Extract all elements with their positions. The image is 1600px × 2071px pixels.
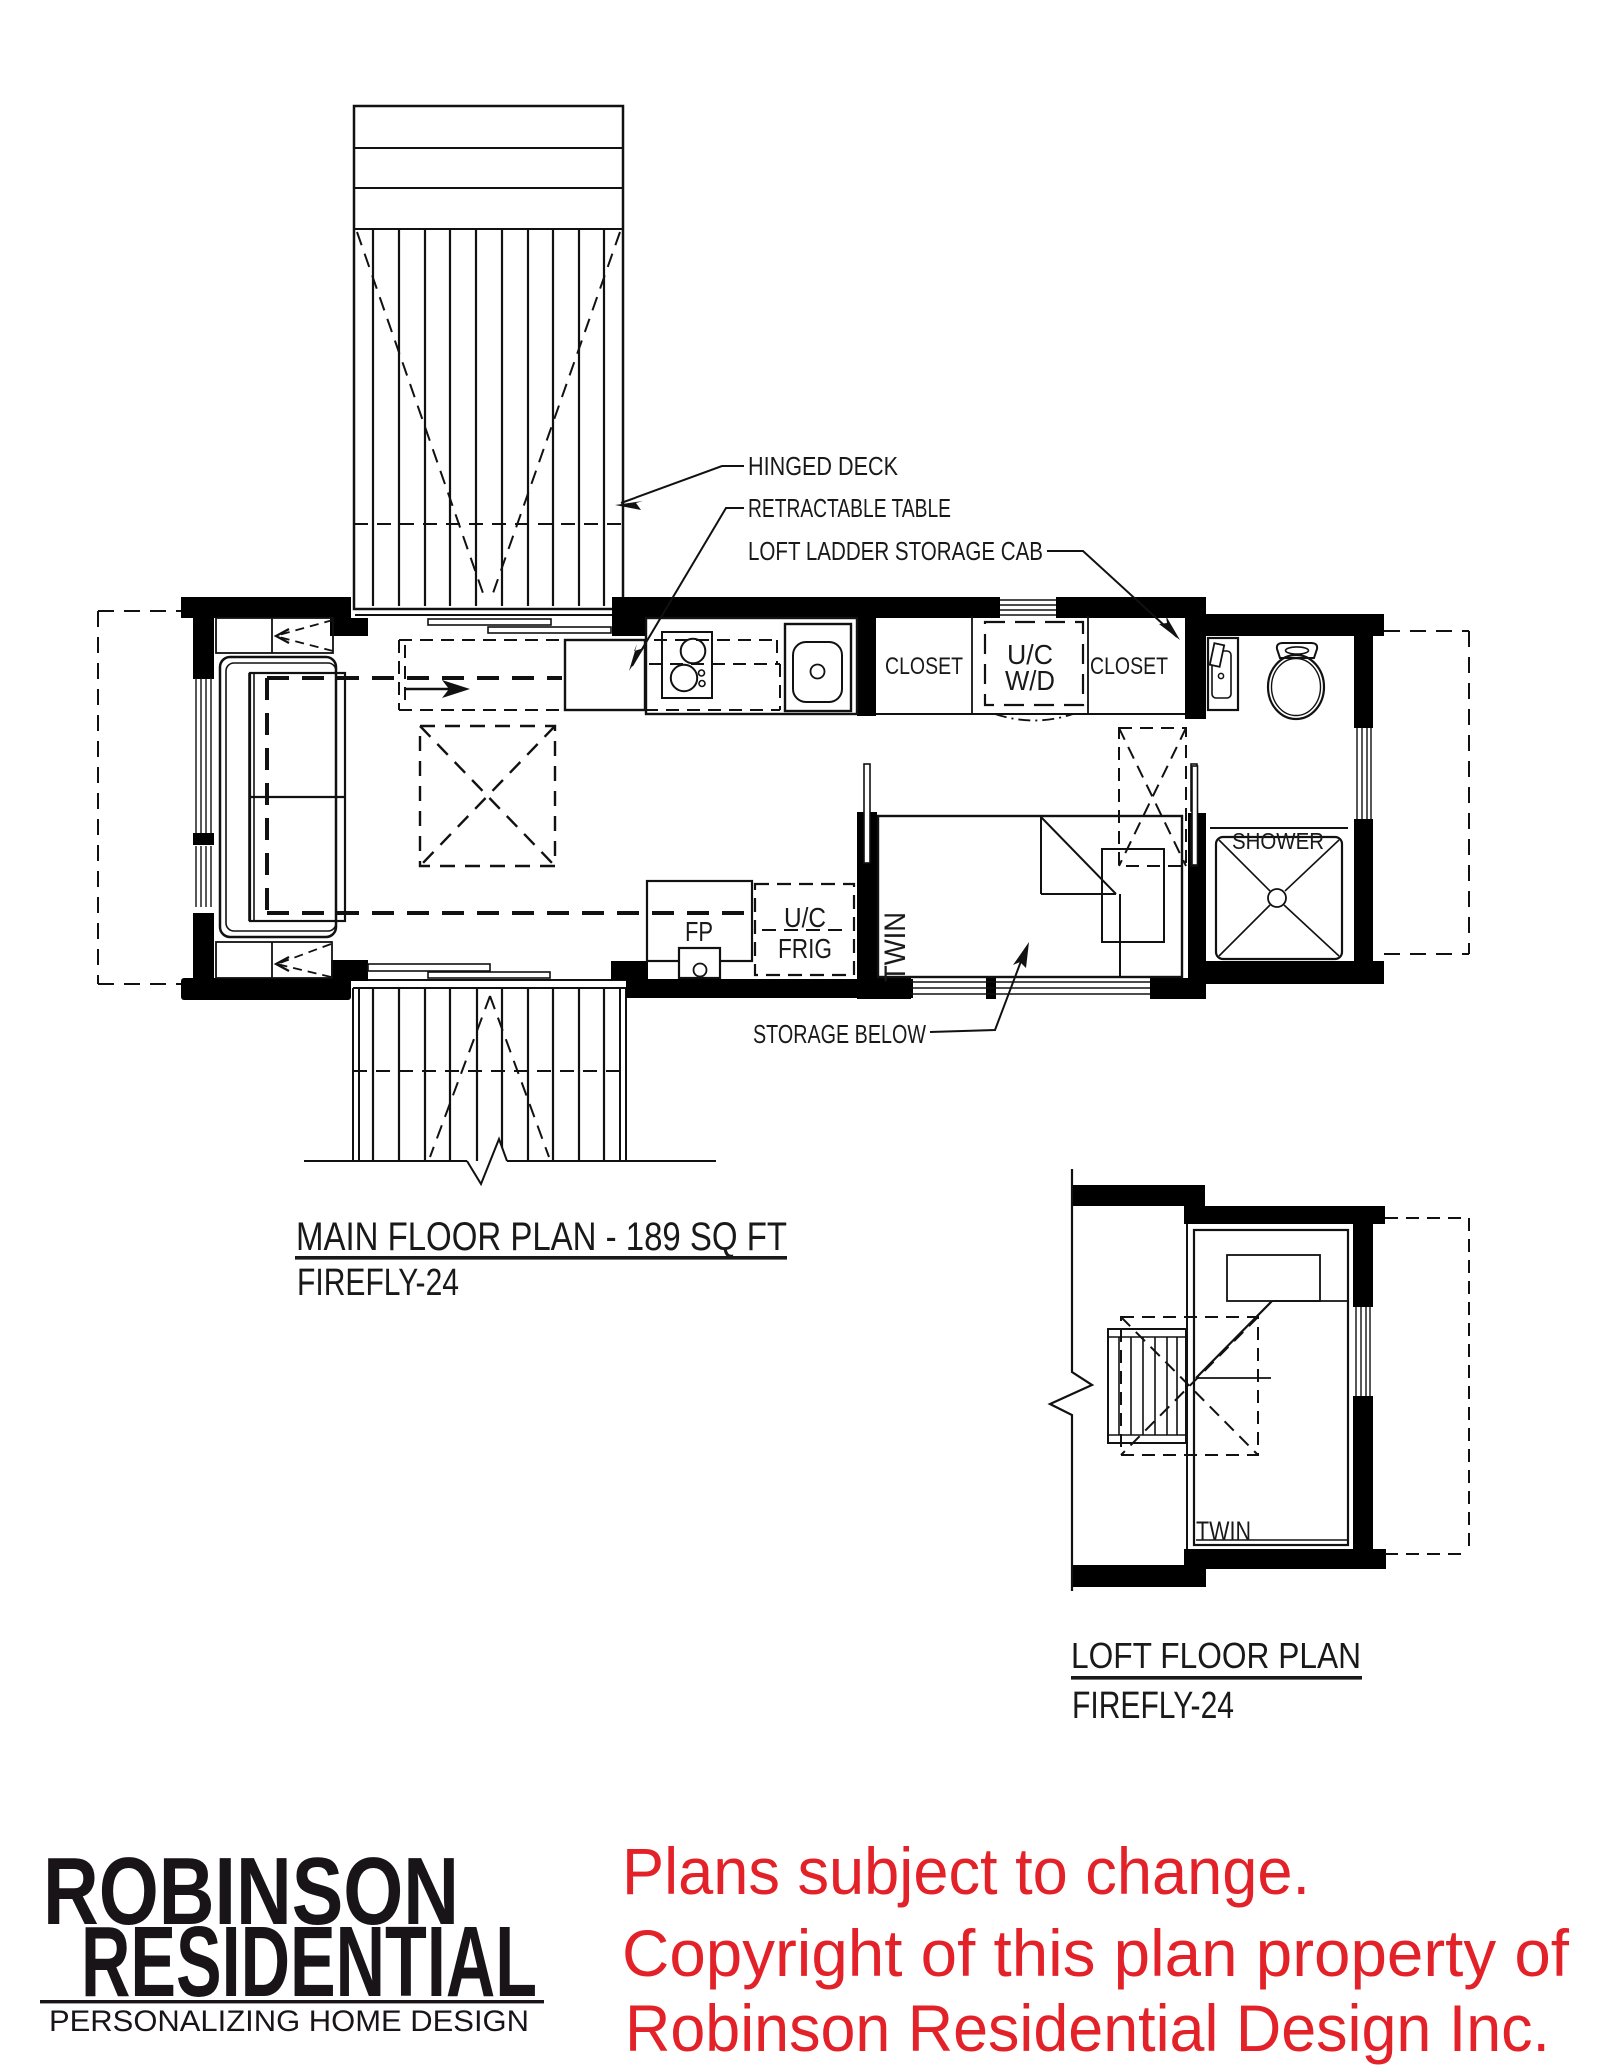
svg-text:FIREFLY-24: FIREFLY-24 bbox=[1072, 1685, 1234, 1727]
svg-text:U/C: U/C bbox=[784, 902, 826, 933]
svg-text:PERSONALIZING HOME DESIGN: PERSONALIZING HOME DESIGN bbox=[49, 2005, 529, 2038]
svg-text:CLOSET: CLOSET bbox=[1090, 653, 1168, 680]
svg-text:Copyright of this plan propert: Copyright of this plan property of bbox=[622, 1916, 1570, 1990]
svg-text:LOFT FLOOR PLAN: LOFT FLOOR PLAN bbox=[1071, 1635, 1361, 1676]
svg-text:Plans subject to change.: Plans subject to change. bbox=[622, 1834, 1310, 1908]
svg-text:STORAGE BELOW: STORAGE BELOW bbox=[753, 1019, 926, 1049]
svg-text:HINGED DECK: HINGED DECK bbox=[748, 451, 899, 481]
svg-text:TWIN: TWIN bbox=[879, 912, 912, 982]
svg-text:SHOWER: SHOWER bbox=[1232, 828, 1324, 854]
svg-text:FIREFLY-24: FIREFLY-24 bbox=[297, 1262, 459, 1304]
svg-text:FP: FP bbox=[685, 916, 713, 947]
svg-text:RETRACTABLE TABLE: RETRACTABLE TABLE bbox=[748, 493, 951, 523]
svg-text:TWIN: TWIN bbox=[1196, 1516, 1251, 1546]
svg-text:CLOSET: CLOSET bbox=[885, 653, 963, 680]
svg-text:LOFT LADDER STORAGE CAB: LOFT LADDER STORAGE CAB bbox=[748, 536, 1043, 566]
svg-text:W/D: W/D bbox=[1005, 665, 1055, 696]
svg-text:FRIG: FRIG bbox=[778, 933, 832, 964]
svg-text:MAIN FLOOR PLAN - 189 SQ FT: MAIN FLOOR PLAN - 189 SQ FT bbox=[296, 1215, 787, 1259]
svg-text:Robinson Residential Design In: Robinson Residential Design Inc. bbox=[625, 1991, 1550, 2065]
